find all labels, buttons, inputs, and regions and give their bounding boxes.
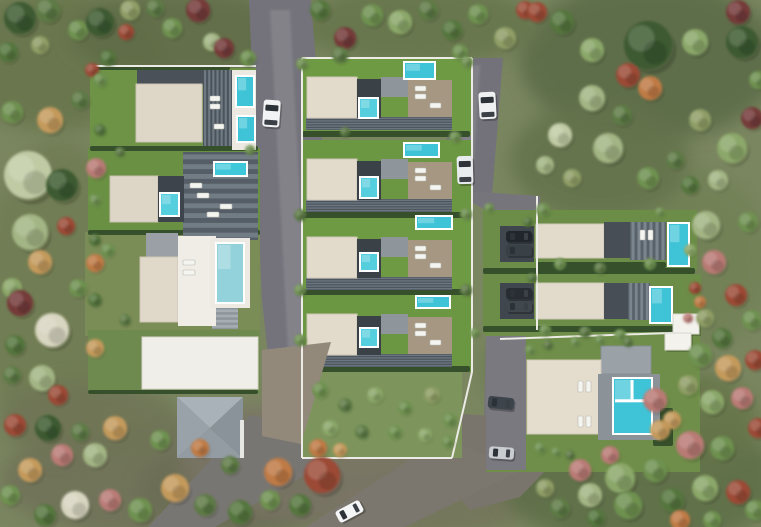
tree-shade xyxy=(59,182,75,198)
tree-shade xyxy=(196,8,208,20)
tree-shade xyxy=(172,485,186,499)
tree-shade xyxy=(158,438,168,448)
tree-shade xyxy=(343,36,354,47)
long-building-roof xyxy=(142,337,258,389)
tree-shade xyxy=(93,453,105,465)
tree-shade xyxy=(750,318,760,328)
tree-shade xyxy=(670,418,679,427)
sun-lounger xyxy=(415,254,426,259)
tree-shade xyxy=(702,486,715,499)
tree-shade xyxy=(318,8,328,18)
tree-shade xyxy=(736,10,748,22)
tree-shade xyxy=(648,86,660,98)
tree-shade xyxy=(344,131,349,136)
tree-shade xyxy=(712,260,724,272)
tree-shade xyxy=(734,293,745,304)
tree-shade xyxy=(689,249,695,255)
mid-plot3-roof xyxy=(307,237,357,278)
mid-plot1-terrace-stripe xyxy=(306,125,452,126)
car-dark-r2-garage-2 xyxy=(506,301,534,314)
scene-canvas xyxy=(0,0,761,527)
tree-shade xyxy=(626,73,638,85)
tree-shade xyxy=(60,453,71,464)
tree-shade xyxy=(716,178,726,188)
tree-shade xyxy=(687,317,692,322)
sun-lounger xyxy=(415,246,426,251)
tree-shade xyxy=(649,263,655,269)
tree-shade xyxy=(316,446,325,455)
sun-lounger xyxy=(415,86,426,91)
hedge-row xyxy=(302,131,470,137)
tree-shade xyxy=(590,48,602,60)
hedge-row xyxy=(88,390,258,394)
mid-plot1-terrace-stripe xyxy=(306,128,452,129)
villa-c-big-pool-glint xyxy=(218,245,231,269)
tree-shade xyxy=(107,249,114,256)
villa-b-lap-pool-glint xyxy=(216,164,231,170)
sun-lounger xyxy=(415,168,426,173)
sun-lounger xyxy=(430,103,441,108)
tree-shade xyxy=(10,373,19,382)
car-white-right-road-2 xyxy=(457,156,476,187)
tree-shade xyxy=(424,434,431,441)
mid-plot4-terrace-stripe xyxy=(306,362,452,363)
car-dark-r1-garage-1-rear-window xyxy=(524,233,528,240)
tree-shade xyxy=(710,400,722,412)
sun-lounger xyxy=(578,416,583,427)
tree-shade xyxy=(38,260,50,272)
tree-shade xyxy=(94,199,100,205)
tree-shade xyxy=(97,19,111,33)
villa-a-deck-stripe xyxy=(204,70,206,146)
tree-shade xyxy=(658,428,668,438)
tree-shade xyxy=(619,334,625,340)
tree-shade xyxy=(404,407,411,414)
tree-shade xyxy=(228,463,237,472)
tree-shade xyxy=(301,63,307,69)
sun-lounger xyxy=(586,416,591,427)
villa-r1-deck xyxy=(630,222,666,260)
tree-shade xyxy=(465,289,471,295)
tree-shade xyxy=(488,207,493,212)
tree-shade xyxy=(529,349,534,354)
tree-shade xyxy=(113,426,125,438)
car-white-right-road-1-windshield xyxy=(481,97,494,104)
tree-shade xyxy=(299,289,305,295)
tree-shade xyxy=(318,389,326,397)
tree-shade xyxy=(570,176,579,185)
villa-r2-deck-stripe xyxy=(646,283,649,320)
tree-shade xyxy=(298,503,309,514)
car-grey-r3-road-body xyxy=(489,446,515,460)
tree-shade xyxy=(449,419,456,426)
sun-lounger xyxy=(197,193,209,198)
tree-shade xyxy=(39,376,52,389)
tree-shade xyxy=(138,508,150,520)
sun-lounger xyxy=(210,104,220,109)
villa-r3-annex-roof xyxy=(601,346,651,374)
tree-shade xyxy=(699,301,705,307)
villa-r1-pool-glint xyxy=(670,225,679,242)
mid-plot3-pool-glint xyxy=(362,255,370,262)
mid-plot2-lap-pool-glint xyxy=(406,145,422,151)
mid-plot4-pool-glint xyxy=(362,330,370,338)
tree-shade xyxy=(559,263,565,269)
villa-r2-deck-stripe xyxy=(629,283,632,320)
tree-shade xyxy=(99,129,105,135)
villa-a-deck-stripe xyxy=(221,70,223,146)
sun-lounger xyxy=(415,94,426,99)
tree-shade xyxy=(268,498,278,508)
sun-lounger xyxy=(415,176,426,181)
tree-shade xyxy=(56,393,66,403)
tree-shade xyxy=(124,31,132,39)
tree-shade xyxy=(599,339,604,344)
tree-shade xyxy=(318,472,336,490)
villa-r2-roof xyxy=(536,283,604,319)
tree-shade xyxy=(646,176,657,187)
tree-shade xyxy=(739,39,755,55)
tree-shade xyxy=(339,449,346,456)
tree-shade xyxy=(198,446,207,455)
mid-plot3-terrace-stripe xyxy=(306,280,452,281)
tree-shade xyxy=(450,28,460,38)
mid-plot1-lap-pool-glint xyxy=(406,64,420,71)
villa-b-roof xyxy=(110,176,158,222)
tree-shade xyxy=(398,20,410,32)
car-dark-r2-garage-2-rear-window xyxy=(524,303,528,310)
tree-shade xyxy=(426,8,436,18)
villa-r3-pool-divider xyxy=(631,380,634,400)
tree-shade xyxy=(599,267,605,273)
tree-shade xyxy=(26,229,44,247)
tree-shade xyxy=(430,394,438,402)
tree-shade xyxy=(569,454,574,459)
villa-r1-deck-stripe xyxy=(644,222,647,260)
sun-lounger xyxy=(430,263,441,268)
mid-plot1-terrace-stripe xyxy=(306,123,452,124)
tree-shade xyxy=(361,431,368,438)
tree-shade xyxy=(659,211,664,216)
tree-shade xyxy=(153,6,162,15)
tree-shade xyxy=(246,57,254,65)
mid-plot3-terrace-stripe xyxy=(306,285,452,286)
tree-shade xyxy=(558,506,568,516)
tree-shade xyxy=(299,339,305,345)
villa-r3-pool-glint xyxy=(615,380,633,402)
tree-shade xyxy=(555,451,560,456)
mid-plot2-grey xyxy=(381,159,408,179)
tree-shade xyxy=(299,214,305,220)
sun-lounger xyxy=(415,331,426,336)
mid-plot3-lap-pool-glint xyxy=(418,218,434,223)
tree-shade xyxy=(344,404,351,411)
tree-shade xyxy=(38,43,47,52)
mid-plot4-lap-pool-glint xyxy=(418,298,433,303)
tree-shade xyxy=(8,493,18,503)
tree-shade xyxy=(687,442,701,456)
tree-shade xyxy=(466,61,472,67)
sun-lounger xyxy=(640,230,645,240)
tree-shade xyxy=(447,441,453,447)
tree-shade xyxy=(543,163,552,172)
villa-b-pool-glint xyxy=(162,195,171,204)
tree-shade xyxy=(45,426,58,439)
car-dark-r1-garage-2-windshield xyxy=(510,247,515,254)
tree-shade xyxy=(625,502,639,516)
tree-shade xyxy=(373,394,381,402)
tree-shade xyxy=(465,213,471,219)
tree-shade xyxy=(275,469,289,483)
mid-plot2-terrace-stripe xyxy=(306,210,452,211)
tree-shade xyxy=(238,510,250,522)
car-dark-r1-garage-2-body xyxy=(506,245,532,256)
tree-shade xyxy=(17,301,30,314)
villa-r1-roof xyxy=(536,224,604,258)
tree-shade xyxy=(28,468,40,480)
tree-shade xyxy=(673,158,682,167)
car-dark-r2-garage-1 xyxy=(506,288,534,301)
tree-shade xyxy=(170,26,180,36)
tree-shade xyxy=(99,79,106,86)
sun-lounger xyxy=(214,124,224,129)
tree-shade xyxy=(531,277,536,282)
mid-plot2-roof xyxy=(307,159,357,200)
car-dark-r3-road xyxy=(487,396,516,413)
hedge-row xyxy=(483,268,695,274)
tree-shade xyxy=(93,346,102,355)
sun-lounger xyxy=(648,230,653,240)
car-dark-r1-garage-2-rear-window xyxy=(524,247,528,254)
car-grey-r3-road-rear-window xyxy=(506,449,511,457)
tree-shade xyxy=(13,423,24,434)
villa-a-pool-1-glint xyxy=(238,78,246,90)
tree-shade xyxy=(17,15,33,31)
mid-plot2-pool-glint xyxy=(362,179,370,187)
tree-shade xyxy=(46,8,58,20)
car-dark-r2-garage-1-body xyxy=(506,288,532,299)
villa-r2-darkwing xyxy=(604,283,628,319)
tree-shade xyxy=(503,36,514,47)
tree-shade xyxy=(454,136,460,142)
tree-shade xyxy=(686,383,696,393)
car-grey-r3-road-windshield xyxy=(493,448,499,456)
tree-shade xyxy=(692,40,705,53)
car-dark-r1-garage-1-body xyxy=(506,231,532,242)
tree-shade xyxy=(6,50,16,60)
tree-shade xyxy=(578,468,589,479)
mid-plot3-terrace-stripe xyxy=(306,288,452,289)
car-dark-r3-road-windshield xyxy=(492,398,498,406)
tree-shade xyxy=(370,13,381,24)
tree-shade xyxy=(78,430,87,439)
mid-plot4-terrace-stripe xyxy=(306,365,452,366)
tree-shade xyxy=(544,329,550,335)
tree-shade xyxy=(725,366,738,379)
tree-shade xyxy=(729,145,744,160)
tree-shade xyxy=(10,110,21,121)
car-dark-r2-garage-2-body xyxy=(506,301,532,312)
mid-plot2-wooddeck xyxy=(408,162,452,199)
mid-plot1-pool-glint xyxy=(361,100,370,108)
tree-shade xyxy=(476,12,486,22)
car-white-central-road-rear-window xyxy=(264,120,277,126)
tree-shade xyxy=(124,319,130,325)
aerial-site-render xyxy=(0,0,761,527)
tree-shade xyxy=(328,427,336,435)
mid-plot2-terrace-stripe xyxy=(306,207,452,208)
villa-r1-deck-stripe xyxy=(638,222,641,260)
mid-plot3-wooddeck xyxy=(408,240,452,277)
villa-r1-deck-stripe xyxy=(662,222,665,260)
villa-r3-pergola xyxy=(665,333,691,350)
tree-shade xyxy=(222,46,232,56)
villa-r1-deck-stripe xyxy=(632,222,635,260)
sun-lounger xyxy=(183,260,195,265)
tree-shade xyxy=(736,490,748,502)
tree-shade xyxy=(394,431,401,438)
tree-shade xyxy=(720,336,730,346)
mid-plot4-terrace-stripe xyxy=(306,357,452,358)
car-dark-r1-garage-1 xyxy=(506,231,534,244)
car-dark-r2-garage-2-windshield xyxy=(510,303,515,310)
villa-r1-deck-stripe xyxy=(650,222,653,260)
sun-lounger xyxy=(415,323,426,328)
tree-shade xyxy=(589,96,602,109)
tree-shade xyxy=(93,261,102,270)
tree-shade xyxy=(203,503,214,514)
tree-shade xyxy=(338,54,346,62)
tree-shade xyxy=(94,299,101,306)
tree-shade xyxy=(43,513,54,524)
tree-shade xyxy=(605,145,620,160)
tree-shade xyxy=(249,149,254,154)
car-grey-r3-road xyxy=(488,446,515,462)
tree-shade xyxy=(539,447,545,453)
tree-shade xyxy=(527,221,532,226)
villa-r2-deck-stripe xyxy=(635,283,638,320)
tree-shade xyxy=(627,341,632,346)
villa-c-roof xyxy=(140,257,178,322)
tree-shade xyxy=(76,28,86,38)
tree-shade xyxy=(653,468,665,480)
tree-shade xyxy=(474,332,479,337)
garage-gutter xyxy=(240,420,244,458)
sun-lounger xyxy=(430,340,441,345)
tree-shade xyxy=(128,8,138,18)
tree-shade xyxy=(653,398,665,410)
villa-a-deck-stripe xyxy=(229,70,231,146)
tree-shade xyxy=(49,327,66,344)
tree-shade xyxy=(47,118,60,131)
car-dark-r1-garage-1-windshield xyxy=(510,233,515,240)
tree-shade xyxy=(94,239,100,245)
tree-shade xyxy=(720,446,732,458)
tree-shade xyxy=(574,341,579,346)
villa-b-deck-stripe xyxy=(183,194,258,199)
mid-plot3-grey xyxy=(381,237,408,257)
villa-a-pool-2-glint xyxy=(239,118,247,128)
tree-shade xyxy=(694,287,700,293)
tree-shade xyxy=(698,353,710,365)
mid-plot1-wooddeck xyxy=(408,80,452,117)
tree-shade xyxy=(703,316,712,325)
sun-lounger xyxy=(578,381,583,392)
tree-shade xyxy=(119,151,124,156)
tree-shade xyxy=(13,343,23,353)
car-dark-r3-road-rear-window xyxy=(506,400,511,408)
villa-r1-deck-stripe xyxy=(656,222,659,260)
car-white-right-road-2-windshield xyxy=(459,161,471,167)
mid-plot2-terrace-stripe xyxy=(306,202,452,203)
tree-shade xyxy=(72,502,86,516)
car-white-central-road xyxy=(262,99,282,129)
tree-shade xyxy=(23,171,47,195)
tree-shade xyxy=(584,331,590,337)
mid-plot2-terrace-stripe xyxy=(306,205,452,206)
mid-plot4-terrace-stripe xyxy=(306,360,452,361)
tree-shade xyxy=(750,116,761,127)
villa-b-deck-stripe xyxy=(183,154,258,159)
car-dark-r2-garage-1-rear-window xyxy=(524,290,528,297)
tree-shade xyxy=(643,41,667,65)
tree-shade xyxy=(78,98,87,107)
tree-shade xyxy=(670,498,682,510)
tree-shade xyxy=(94,166,104,176)
villa-a-roof xyxy=(136,84,202,142)
tree-shade xyxy=(542,209,549,216)
mid-plot1-roof xyxy=(307,77,357,118)
tree-shade xyxy=(620,113,630,123)
tree-shade xyxy=(76,286,85,295)
car-white-right-road-2-rear-window xyxy=(459,177,471,182)
sun-lounger xyxy=(586,381,591,392)
tree-shade xyxy=(106,57,114,65)
tree-shade xyxy=(543,486,552,495)
tree-shade xyxy=(740,396,751,407)
villa-b-deck-stripe xyxy=(183,213,258,218)
mid-plot4-grey xyxy=(381,314,408,334)
mid-plot4-wooddeck xyxy=(408,317,452,354)
sun-lounger xyxy=(210,96,220,101)
tree-shade xyxy=(547,344,552,349)
mid-plot1-terrace-stripe xyxy=(306,120,452,121)
tree-shade xyxy=(617,475,632,490)
villa-r2-deck-stripe xyxy=(640,283,643,320)
tree-shade xyxy=(703,222,717,236)
car-dark-r2-garage-1-windshield xyxy=(510,290,515,297)
car-dark-r1-garage-2 xyxy=(506,245,534,258)
sun-lounger xyxy=(183,270,195,275)
car-white-central-road-windshield xyxy=(265,105,278,112)
car-white-right-road-1 xyxy=(478,91,498,121)
tree-shade xyxy=(746,220,756,230)
tree-shade xyxy=(594,516,603,525)
tree-shade xyxy=(535,10,545,20)
tree-shade xyxy=(64,224,73,233)
tree-shade xyxy=(588,493,600,505)
mid-plot3-terrace-stripe xyxy=(306,283,452,284)
sun-lounger xyxy=(430,185,441,190)
car-white-right-road-1-rear-window xyxy=(481,112,494,118)
sun-lounger xyxy=(220,204,232,209)
tree-shade xyxy=(688,183,697,192)
villa-r2-pool-glint xyxy=(652,289,662,303)
villa-a-deck-stripe xyxy=(225,70,227,146)
tree-shade xyxy=(560,20,572,32)
tree-shade xyxy=(698,118,709,129)
tree-shade xyxy=(108,498,119,509)
